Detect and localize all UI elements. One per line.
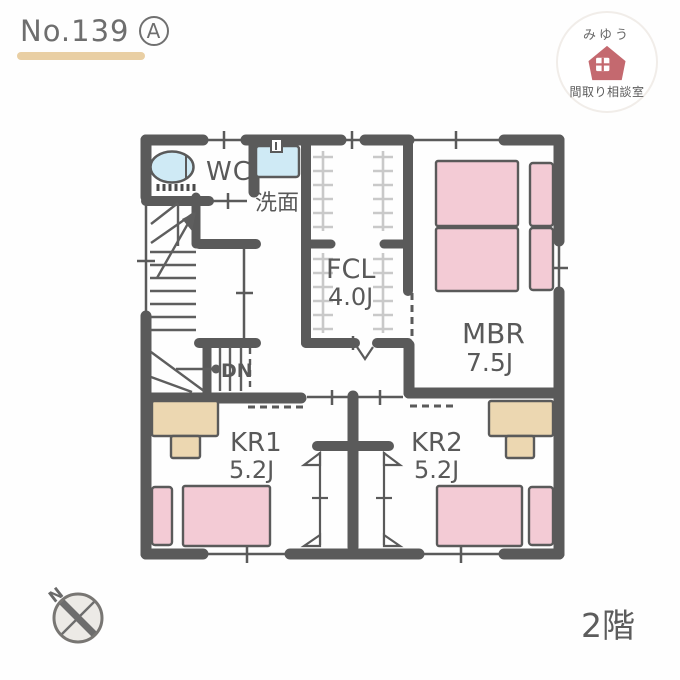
logo-name: みゆう: [583, 24, 631, 43]
fcl-door-mark: [357, 347, 373, 359]
kr1-desk: [152, 401, 218, 458]
compass-icon: N: [45, 583, 102, 642]
logo-subtitle: 間取り相談室: [569, 83, 644, 100]
house-icon: [586, 44, 628, 82]
washroom-label: 洗面: [255, 191, 299, 216]
kr1-label: KR1: [230, 428, 282, 458]
title: No.139 A: [20, 14, 169, 48]
kr1-bed: [152, 486, 270, 546]
logo: みゆう 間取り相談室: [556, 11, 658, 113]
hanger-rack-icon: [313, 151, 333, 231]
wc-door-hatch: [158, 184, 194, 191]
mbr-size-label: 7.5J: [466, 348, 513, 377]
plan-number: No.139: [20, 14, 130, 48]
mbr-bed-2: [436, 228, 553, 291]
variant-letter: A: [147, 19, 161, 43]
hanger-rack-icon: [373, 151, 393, 231]
kr2-size-label: 5.2J: [414, 456, 459, 484]
dn-label: DN: [221, 360, 253, 382]
kr1-size-label: 5.2J: [229, 456, 274, 484]
mbr-label: MBR: [462, 317, 525, 350]
kr2-bed: [437, 486, 553, 546]
hanger-rack-icon: [373, 253, 393, 333]
dn-marker-dot: [212, 365, 221, 374]
kr2-desk: [489, 401, 553, 458]
floor-plan-page: No.139 A みゆう 間取り相談室: [0, 0, 680, 680]
kr2-label: KR2: [411, 428, 463, 458]
toilet: [151, 152, 194, 183]
wc-label: WC: [206, 157, 252, 187]
mbr-bed-1: [436, 161, 553, 226]
variant-badge: A: [139, 16, 169, 46]
fcl-size-label: 4.0J: [328, 283, 373, 311]
fcl-label: FCL: [326, 254, 375, 285]
floor-label: 2階: [581, 606, 635, 645]
